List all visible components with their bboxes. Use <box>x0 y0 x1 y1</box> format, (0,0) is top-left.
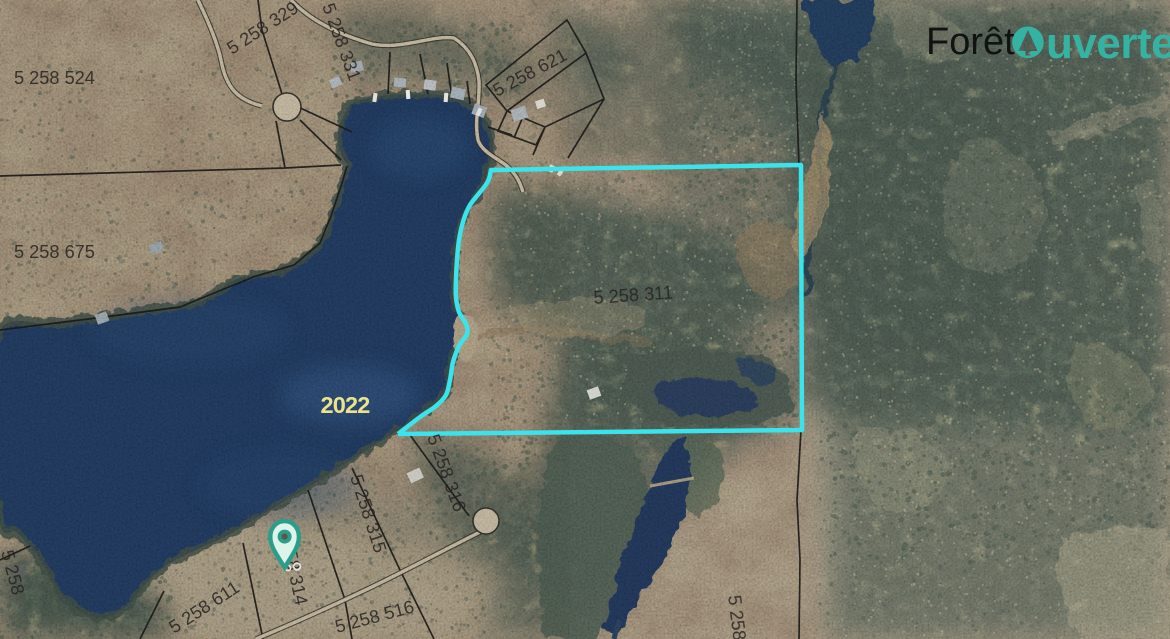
svg-text:uverte: uverte <box>1046 19 1170 68</box>
svg-text:Forêt: Forêt <box>926 21 1015 63</box>
svg-text:2022: 2022 <box>321 392 371 418</box>
svg-text:5 258 675: 5 258 675 <box>14 242 95 262</box>
svg-text:5 258 524: 5 258 524 <box>14 68 95 88</box>
